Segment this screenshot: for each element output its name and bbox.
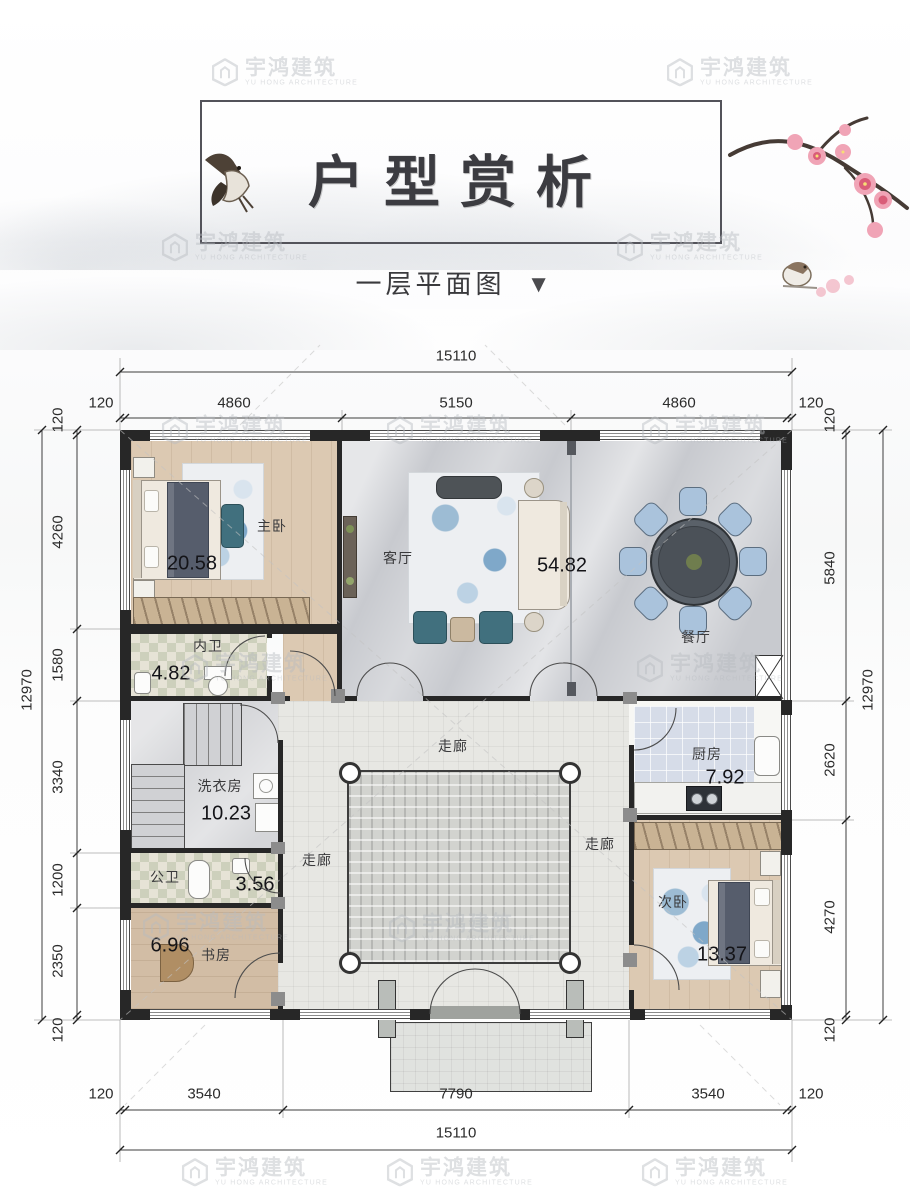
dim-left-seg-6: 120 bbox=[50, 1017, 67, 1042]
wall bbox=[131, 624, 337, 634]
room-area-kitchen: 7.92 bbox=[706, 767, 745, 790]
dining-chair bbox=[679, 487, 707, 516]
wall bbox=[629, 815, 786, 820]
dining-chair bbox=[739, 547, 767, 576]
dim-bottom-seg-1: 3540 bbox=[187, 1086, 220, 1103]
room-label-second-bedroom: 次卧 bbox=[658, 892, 688, 912]
wall-junction bbox=[623, 953, 637, 967]
room-label-dining: 餐厅 bbox=[681, 627, 711, 647]
burner bbox=[691, 793, 703, 805]
dim-top-seg-2: 5150 bbox=[439, 395, 472, 412]
wall-junction bbox=[271, 842, 285, 854]
wall bbox=[629, 745, 634, 945]
dim-bottom-seg-2: 7790 bbox=[439, 1086, 472, 1103]
courtyard-paving bbox=[347, 770, 571, 964]
window bbox=[530, 1009, 630, 1020]
window bbox=[781, 470, 792, 700]
bath-sink bbox=[134, 672, 151, 694]
small-sink bbox=[232, 858, 250, 874]
down-triangle-icon: ▼ bbox=[527, 271, 555, 299]
room-area-study: 6.96 bbox=[151, 935, 190, 958]
room-area-living: 54.82 bbox=[537, 555, 587, 578]
washer-door bbox=[259, 779, 273, 793]
stairs-lower-flight bbox=[131, 764, 185, 850]
dim-bottom-total: 15110 bbox=[436, 1125, 477, 1142]
dim-top-seg-1: 4860 bbox=[217, 395, 250, 412]
armchair bbox=[479, 611, 513, 644]
window bbox=[120, 470, 131, 610]
window bbox=[781, 855, 792, 1005]
corridor-label-right: 走廊 bbox=[585, 834, 615, 854]
watermark: 宇鸿建筑YU HONG ARCHITECTURE bbox=[642, 1157, 788, 1186]
entrance-threshold bbox=[430, 1006, 520, 1019]
window bbox=[120, 920, 131, 990]
watermark: 宇鸿建筑YU HONG ARCHITECTURE bbox=[387, 1157, 533, 1186]
floor-plan: 主卧 20.58 客厅 54.82 餐厅 内卫 4.82 洗衣房 10.23 公… bbox=[120, 430, 792, 1020]
divider-post bbox=[567, 682, 576, 696]
hexagon-house-logo bbox=[387, 1158, 413, 1186]
master-bench bbox=[221, 504, 244, 548]
coffee-table bbox=[450, 617, 475, 642]
room-label-living: 客厅 bbox=[383, 548, 413, 568]
window bbox=[781, 715, 792, 810]
console-table bbox=[343, 516, 357, 598]
room-area-laundry: 10.23 bbox=[201, 803, 251, 826]
dining-chair bbox=[619, 547, 647, 576]
pillow bbox=[144, 546, 159, 568]
dim-bottom-seg-3: 3540 bbox=[691, 1086, 724, 1103]
room-area-public-bath: 3.56 bbox=[236, 874, 275, 897]
wall-junction bbox=[271, 692, 285, 704]
hexagon-house-logo bbox=[642, 1158, 668, 1186]
second-wardrobe bbox=[634, 822, 783, 850]
page-title: 户型赏析 bbox=[225, 138, 695, 219]
hexagon-house-logo bbox=[667, 58, 693, 86]
room-label-kitchen: 厨房 bbox=[692, 744, 722, 764]
wall bbox=[423, 696, 530, 701]
dim-right-total: 12970 bbox=[860, 669, 877, 711]
dim-right-seg-3: 4270 bbox=[822, 900, 839, 933]
wall bbox=[278, 740, 283, 853]
courtyard-pillar bbox=[559, 762, 581, 784]
wall-junction bbox=[623, 692, 637, 704]
second-headboard bbox=[772, 880, 781, 964]
window bbox=[150, 1009, 270, 1020]
room-label-master: 主卧 bbox=[257, 516, 287, 536]
room-label-inner-bath: 内卫 bbox=[193, 636, 223, 656]
window bbox=[370, 430, 540, 441]
wall bbox=[131, 903, 278, 908]
courtyard-pillar bbox=[339, 952, 361, 974]
stove bbox=[686, 786, 722, 811]
plant bbox=[346, 525, 354, 533]
wall bbox=[267, 634, 272, 638]
corridor-label-top: 走廊 bbox=[438, 736, 468, 756]
nightstand bbox=[760, 851, 781, 876]
dim-left-seg-4: 1200 bbox=[50, 863, 67, 896]
nightstand bbox=[133, 457, 155, 478]
wall-junction bbox=[271, 992, 285, 1006]
side-table bbox=[524, 612, 544, 632]
window bbox=[300, 1009, 410, 1020]
master-wardrobe bbox=[133, 597, 310, 625]
wall-junction bbox=[271, 897, 285, 909]
dim-bottom-seg-0: 120 bbox=[88, 1086, 113, 1103]
side-table bbox=[524, 478, 544, 498]
tv-console bbox=[436, 476, 502, 499]
kitchen-sink bbox=[754, 736, 780, 776]
dim-right-seg-2: 2620 bbox=[822, 743, 839, 776]
dim-left-seg-0: 120 bbox=[50, 407, 67, 432]
window bbox=[150, 430, 310, 441]
room-label-public-bath: 公卫 bbox=[150, 867, 180, 887]
plant bbox=[346, 577, 354, 585]
pillow bbox=[754, 888, 770, 906]
wall bbox=[337, 441, 342, 624]
corridor-label-left: 走廊 bbox=[302, 850, 332, 870]
nightstand bbox=[760, 970, 781, 998]
subtitle-text: 一层平面图 bbox=[355, 269, 505, 299]
laundry-sink bbox=[255, 803, 279, 832]
dim-right-seg-0: 120 bbox=[822, 407, 839, 432]
entrance-porch-steps bbox=[390, 1022, 592, 1092]
wall bbox=[131, 848, 278, 853]
stairs-upper-flight bbox=[183, 703, 242, 766]
wall bbox=[629, 990, 634, 1009]
swallow-bird-icon bbox=[195, 142, 275, 222]
room-area-second-bedroom: 13.37 bbox=[697, 944, 747, 967]
watermark: 宇鸿建筑YU HONG ARCHITECTURE bbox=[667, 57, 813, 86]
dim-left-seg-2: 1580 bbox=[50, 648, 67, 681]
dim-top-seg-3: 4860 bbox=[662, 395, 695, 412]
window bbox=[120, 720, 131, 830]
suite-hall-floor bbox=[283, 629, 337, 701]
pillow bbox=[754, 940, 770, 958]
watermark: 宇鸿建筑YU HONG ARCHITECTURE bbox=[182, 1157, 328, 1186]
dim-left-seg-1: 4260 bbox=[50, 515, 67, 548]
hexagon-house-logo bbox=[212, 58, 238, 86]
courtyard-pillar bbox=[559, 952, 581, 974]
dim-left-total: 12970 bbox=[19, 669, 36, 711]
courtyard-pillar bbox=[339, 762, 361, 784]
dim-left-seg-5: 2350 bbox=[50, 944, 67, 977]
window bbox=[600, 430, 760, 441]
divider-post bbox=[567, 441, 576, 455]
dim-bottom-seg-4: 120 bbox=[798, 1086, 823, 1103]
dim-left-seg-3: 3340 bbox=[50, 760, 67, 793]
nightstand bbox=[133, 580, 155, 598]
dim-right-seg-1: 5840 bbox=[822, 551, 839, 584]
dining-table bbox=[650, 518, 738, 606]
burner bbox=[706, 793, 718, 805]
armchair bbox=[413, 611, 447, 644]
pillow bbox=[144, 490, 159, 512]
room-area-inner-bath: 4.82 bbox=[152, 663, 191, 686]
shower-tray bbox=[188, 860, 210, 899]
dim-right-seg-4: 120 bbox=[822, 1017, 839, 1042]
table-centerpiece bbox=[686, 554, 702, 570]
dim-top-seg-4: 120 bbox=[798, 395, 823, 412]
window bbox=[645, 1009, 770, 1020]
wall bbox=[131, 696, 290, 701]
hexagon-house-logo bbox=[182, 1158, 208, 1186]
room-area-master: 20.58 bbox=[167, 553, 217, 576]
master-headboard bbox=[133, 480, 142, 578]
toilet-bowl bbox=[208, 676, 228, 696]
wall-junction bbox=[623, 808, 637, 822]
dim-top-total: 15110 bbox=[436, 348, 477, 365]
dim-top-seg-0: 120 bbox=[88, 395, 113, 412]
floorplan-poster: 户型赏析 一层平面图 ▼ 宇鸿建筑YU HONG ARCHITECTU bbox=[0, 0, 910, 1198]
washing-machine bbox=[253, 773, 279, 799]
watermark: 宇鸿建筑YU HONG ARCHITECTURE bbox=[212, 57, 358, 86]
room-label-laundry: 洗衣房 bbox=[198, 776, 243, 796]
room-label-study: 书房 bbox=[201, 945, 231, 965]
wall-junction bbox=[331, 689, 345, 703]
plum-blossom-branch bbox=[725, 90, 910, 305]
